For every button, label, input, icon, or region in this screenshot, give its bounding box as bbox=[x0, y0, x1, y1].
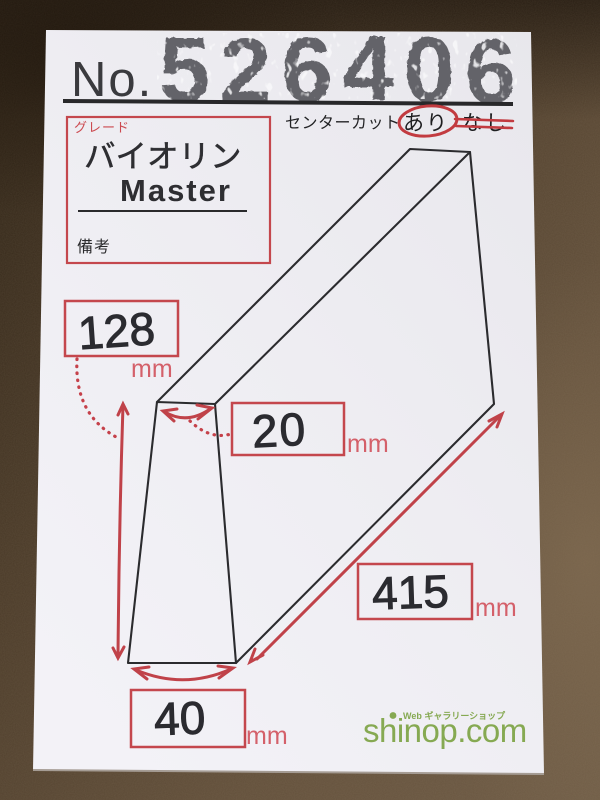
svg-text:mm: mm bbox=[131, 355, 173, 383]
svg-text:mm: mm bbox=[347, 430, 389, 458]
svg-text:備考: 備考 bbox=[77, 238, 111, 256]
svg-text:40: 40 bbox=[153, 691, 206, 745]
svg-text:あり: あり bbox=[403, 112, 449, 135]
svg-text:20: 20 bbox=[251, 403, 309, 458]
svg-text:Master: Master bbox=[120, 173, 232, 208]
svg-text:No.: No. bbox=[71, 53, 153, 107]
svg-text:mm: mm bbox=[475, 594, 517, 622]
svg-text:グレード: グレード bbox=[74, 120, 130, 135]
svg-text:415: 415 bbox=[371, 565, 450, 620]
svg-text:なし: なし bbox=[462, 112, 508, 135]
svg-text:Web ギャラリーショップ: Web ギャラリーショップ bbox=[403, 710, 506, 721]
svg-text:センターカット: センターカット bbox=[285, 114, 401, 132]
svg-text:バイオリン: バイオリン bbox=[84, 138, 242, 174]
svg-text:mm: mm bbox=[246, 722, 288, 750]
svg-text:128: 128 bbox=[76, 302, 156, 359]
